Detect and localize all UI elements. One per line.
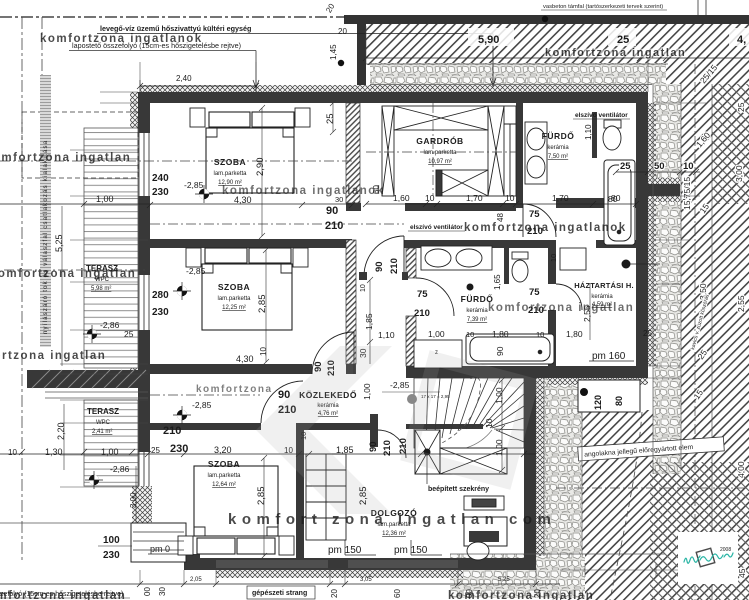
svg-text:-2,86: -2,86 — [100, 320, 120, 330]
svg-text:lam.parketta: lam.parketta — [423, 150, 457, 156]
svg-text:210: 210 — [382, 440, 393, 456]
svg-text:20: 20 — [338, 27, 347, 36]
svg-text:5,25: 5,25 — [54, 234, 64, 252]
svg-text:10,97 m²: 10,97 m² — [428, 159, 452, 165]
svg-text:210: 210 — [389, 258, 400, 274]
svg-text:komfortzona ingatlan: komfortzona ingatlan — [0, 268, 136, 280]
svg-text:GARDRÓB: GARDRÓB — [416, 135, 463, 146]
svg-text:komfortzona ingatlan: komfortzona ingatlan — [0, 350, 106, 362]
svg-text:5,25: 5,25 — [498, 577, 510, 583]
svg-text:1,65: 1,65 — [493, 274, 502, 290]
svg-text:komfortzona ingatlan: komfortzona ingatlan — [0, 590, 126, 600]
svg-text:1,85: 1,85 — [336, 445, 354, 455]
svg-text:25: 25 — [124, 329, 134, 339]
svg-text:90: 90 — [368, 441, 379, 452]
svg-text:2,20: 2,20 — [56, 422, 66, 440]
svg-text:75: 75 — [417, 289, 428, 300]
svg-text:90: 90 — [374, 261, 385, 272]
svg-text:20: 20 — [330, 589, 339, 598]
svg-text:120: 120 — [593, 395, 603, 410]
svg-text:48: 48 — [496, 213, 505, 222]
svg-text:25: 25 — [151, 446, 160, 455]
svg-text:1,45: 1,45 — [329, 44, 338, 60]
svg-text:lam.parketta: lam.parketta — [217, 296, 251, 302]
svg-text:12,25 m²: 12,25 m² — [222, 305, 246, 311]
svg-text:1,70: 1,70 — [466, 193, 483, 203]
svg-text:SZOBA: SZOBA — [208, 459, 240, 469]
svg-text:kerámia: kerámia — [591, 294, 613, 300]
svg-text:levegő-víz üzemű hőszivattyú k: levegő-víz üzemű hőszivattyú kültéri egy… — [100, 24, 251, 33]
svg-text:280: 280 — [152, 290, 169, 301]
svg-text:2,40: 2,40 — [176, 74, 192, 83]
svg-text:45: 45 — [737, 568, 747, 578]
svg-text:10: 10 — [360, 284, 367, 292]
svg-text:komfortzona ingatlan: komfortzona ingatlan — [545, 47, 686, 59]
svg-text:komfortzona ingatlanok: komfortzona ingatlanok — [464, 222, 627, 234]
svg-text:25: 25 — [617, 34, 629, 46]
svg-text:komfortzona ingatlanok: komfortzona ingatlanok — [222, 185, 385, 197]
svg-text:12,36 m²: 12,36 m² — [382, 531, 406, 537]
svg-text:2008: 2008 — [720, 547, 731, 553]
svg-text:7,39 m²: 7,39 m² — [467, 317, 487, 323]
svg-text:5,98 m²: 5,98 m² — [91, 286, 111, 292]
svg-text:-2,86: -2,86 — [110, 464, 130, 474]
svg-text:kerámia: kerámia — [466, 308, 488, 314]
svg-text:komfortzona ingatlanok: komfortzona ingatlanok — [40, 33, 203, 45]
svg-text:10: 10 — [425, 193, 435, 203]
svg-text:210: 210 — [163, 425, 181, 437]
svg-text:90: 90 — [326, 205, 338, 217]
svg-text:lam.parketta: lam.parketta — [207, 473, 241, 479]
svg-text:3,00: 3,00 — [734, 165, 744, 182]
svg-text:komfortzona ingatlan: komfortzona ingatlan — [0, 152, 131, 164]
svg-text:-2,85: -2,85 — [192, 400, 212, 410]
svg-text:230: 230 — [152, 187, 169, 198]
svg-text:elszívó ventilátor: elszívó ventilátor — [410, 224, 463, 231]
svg-text:1,00: 1,00 — [428, 329, 445, 339]
svg-text:2,90: 2,90 — [255, 158, 266, 177]
svg-text:10: 10 — [505, 193, 515, 203]
svg-text:240: 240 — [152, 173, 169, 184]
svg-text:10: 10 — [466, 330, 474, 339]
svg-text:7,50 m²: 7,50 m² — [548, 154, 568, 160]
svg-text:elszívó ventilátor: elszívó ventilátor — [575, 112, 628, 119]
svg-text:230: 230 — [103, 550, 120, 561]
svg-text:3,00: 3,00 — [129, 492, 138, 508]
svg-text:-2,85: -2,85 — [184, 180, 204, 190]
svg-text:2,41 m²: 2,41 m² — [92, 429, 112, 435]
svg-text:4,00: 4,00 — [736, 461, 746, 478]
svg-text:1,80: 1,80 — [492, 329, 509, 339]
svg-text:1,60: 1,60 — [393, 193, 410, 203]
svg-text:210: 210 — [325, 220, 343, 232]
svg-text:10: 10 — [8, 448, 17, 457]
svg-text:4,30: 4,30 — [236, 354, 254, 364]
svg-text:1,85: 1,85 — [364, 313, 374, 330]
svg-text:komfort zona ingatlan com: komfort zona ingatlan com — [228, 511, 556, 528]
svg-text:2,05: 2,05 — [190, 577, 202, 583]
svg-text:gépészeti strang: gépészeti strang — [252, 590, 307, 597]
svg-text:SZOBA: SZOBA — [214, 157, 246, 167]
svg-text:lam.parketta: lam.parketta — [213, 171, 247, 177]
svg-text:75: 75 — [529, 209, 540, 220]
svg-text:1,80: 1,80 — [566, 329, 583, 339]
svg-text:2,85: 2,85 — [256, 487, 267, 506]
svg-text:pm 0: pm 0 — [150, 544, 170, 554]
svg-text:beépített szekrény: beépített szekrény — [428, 486, 489, 493]
svg-text:10: 10 — [259, 347, 268, 356]
svg-text:kerámia: kerámia — [547, 145, 569, 151]
svg-text:SZOBA: SZOBA — [218, 282, 250, 292]
svg-text:vasbeton támfal (tartószerkeze: vasbeton támfal (tartószerkezeti tervek … — [543, 4, 663, 10]
svg-text:pm 160: pm 160 — [592, 351, 626, 362]
svg-text:1,00: 1,00 — [101, 447, 119, 457]
svg-text:FÜRDŐ: FÜRDŐ — [542, 130, 575, 141]
svg-text:80: 80 — [608, 194, 618, 204]
svg-text:1,70: 1,70 — [552, 193, 569, 203]
svg-text:komfortzona ingatlan: komfortzona ingatlan — [488, 302, 634, 314]
svg-text:210: 210 — [414, 308, 430, 319]
svg-text:2,55: 2,55 — [736, 295, 746, 312]
svg-text:komfortzona: komfortzona — [196, 384, 273, 395]
svg-text:15,75/15: 15,75/15 — [682, 177, 692, 210]
svg-text:75: 75 — [529, 287, 540, 298]
svg-text:1,10: 1,10 — [584, 124, 593, 140]
svg-text:25: 25 — [643, 329, 652, 338]
svg-text:00: 00 — [143, 587, 152, 596]
svg-text:3,20: 3,20 — [214, 445, 232, 455]
svg-text:10: 10 — [536, 330, 544, 339]
svg-text:30: 30 — [158, 587, 167, 596]
svg-text:nyílászáró tok és válaszfal cs: nyílászáró tok és válaszfal csatlakozás … — [43, 140, 49, 334]
svg-text:HÁZTARTÁSI H.: HÁZTARTÁSI H. — [574, 281, 634, 290]
svg-text:1,00: 1,00 — [96, 194, 114, 204]
svg-text:TERASZ: TERASZ — [87, 407, 119, 416]
svg-text:2,85: 2,85 — [257, 295, 268, 314]
svg-text:230: 230 — [152, 307, 169, 318]
svg-text:25: 25 — [736, 102, 746, 112]
svg-text:1,10: 1,10 — [378, 330, 395, 340]
svg-text:komfortzona ingatlan: komfortzona ingatlan — [448, 590, 594, 600]
svg-text:80: 80 — [614, 396, 624, 406]
svg-text:5,90: 5,90 — [478, 34, 499, 46]
svg-text:2,85: 2,85 — [358, 487, 369, 506]
svg-text:10: 10 — [549, 254, 558, 262]
svg-text:1,00: 1,00 — [494, 439, 504, 456]
svg-text:25: 25 — [325, 113, 336, 124]
svg-text:12,64 m²: 12,64 m² — [212, 482, 236, 488]
svg-text:90: 90 — [495, 346, 505, 356]
svg-text:1,00: 1,00 — [494, 387, 504, 404]
svg-text:10: 10 — [484, 418, 494, 428]
svg-text:10: 10 — [683, 161, 694, 172]
svg-text:-2,85: -2,85 — [390, 380, 410, 390]
svg-text:60: 60 — [393, 589, 402, 598]
svg-text:1,30: 1,30 — [45, 447, 63, 457]
svg-text:25: 25 — [620, 161, 631, 172]
svg-text:50: 50 — [654, 161, 665, 172]
svg-text:3,05: 3,05 — [360, 577, 372, 583]
svg-text:230: 230 — [170, 443, 188, 455]
svg-text:100: 100 — [103, 535, 120, 546]
svg-text:4,: 4, — [737, 34, 746, 46]
svg-text:1,00: 1,00 — [362, 383, 372, 400]
svg-text:-2,85: -2,85 — [186, 266, 206, 276]
